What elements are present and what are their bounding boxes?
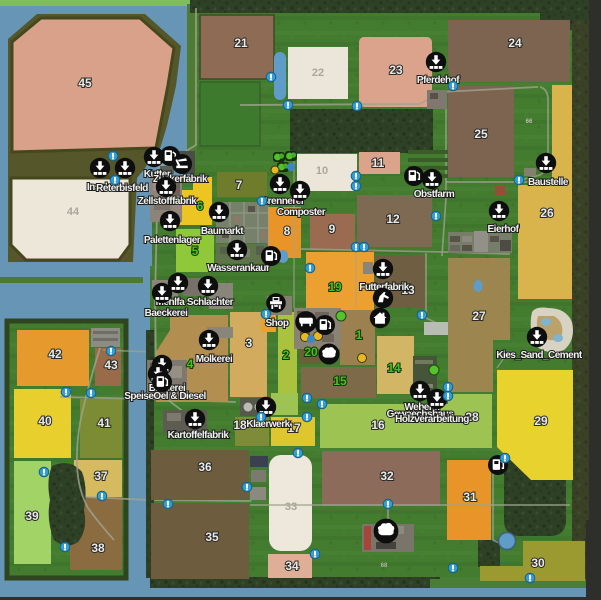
svg-text:23: 23: [389, 63, 403, 77]
svg-text:45: 45: [78, 76, 92, 90]
svg-text:7: 7: [236, 178, 243, 192]
svg-text:12: 12: [386, 212, 400, 226]
svg-text:SpeiseOel & Diesel: SpeiseOel & Diesel: [124, 391, 206, 402]
svg-text:21: 21: [234, 36, 248, 50]
svg-text:Reterbisfeld: Reterbisfeld: [96, 183, 148, 194]
svg-text:9: 9: [329, 222, 336, 236]
svg-text:Baumarkt: Baumarkt: [201, 226, 244, 237]
svg-text:43: 43: [104, 358, 118, 372]
svg-text:Shop: Shop: [266, 318, 289, 329]
svg-text:1: 1: [356, 328, 363, 342]
svg-text:30: 30: [531, 556, 545, 570]
svg-text:Wasserankauf: Wasserankauf: [207, 263, 270, 274]
svg-text:40: 40: [38, 414, 52, 428]
svg-text:16: 16: [371, 418, 385, 432]
svg-text:22: 22: [312, 67, 324, 79]
svg-text:18: 18: [233, 418, 247, 432]
svg-text:3: 3: [246, 336, 253, 350]
svg-text:Composter: Composter: [277, 207, 326, 218]
svg-text:38: 38: [91, 541, 105, 555]
svg-text:36: 36: [198, 460, 212, 474]
svg-text:26: 26: [540, 206, 554, 220]
svg-text:10: 10: [316, 165, 328, 177]
svg-text:29: 29: [534, 414, 548, 428]
svg-text:31: 31: [463, 490, 477, 504]
svg-text:14: 14: [387, 361, 401, 375]
svg-text:4: 4: [187, 357, 194, 371]
svg-text:Kies_Sand_Cement: Kies_Sand_Cement: [496, 350, 583, 361]
svg-text:5: 5: [192, 244, 199, 258]
svg-text:34: 34: [285, 559, 299, 573]
svg-text:68: 68: [381, 563, 388, 569]
svg-text:Molkerei: Molkerei: [196, 354, 233, 365]
svg-text:Palettenlager: Palettenlager: [144, 235, 201, 246]
svg-text:Schlachter: Schlachter: [187, 297, 234, 308]
svg-text:20: 20: [304, 345, 318, 359]
svg-text:8: 8: [284, 224, 291, 238]
svg-text:19: 19: [328, 280, 342, 294]
svg-text:Kartoffelfabrik: Kartoffelfabrik: [168, 430, 230, 441]
svg-text:Holzverarbeitung: Holzverarbeitung: [395, 414, 469, 425]
svg-text:37: 37: [94, 469, 108, 483]
svg-text:15: 15: [333, 374, 347, 388]
svg-text:27: 27: [472, 309, 486, 323]
svg-text:11: 11: [372, 156, 385, 170]
svg-text:Klaerwerk: Klaerwerk: [246, 419, 290, 430]
svg-text:2: 2: [283, 348, 290, 362]
svg-text:25: 25: [474, 127, 488, 141]
svg-text:35: 35: [205, 530, 219, 544]
svg-text:24: 24: [508, 36, 522, 50]
svg-text:42: 42: [48, 347, 62, 361]
svg-text:Baustelle: Baustelle: [528, 177, 569, 188]
svg-text:41: 41: [97, 416, 111, 430]
svg-text:Baeckerei: Baeckerei: [145, 308, 188, 319]
svg-text:33: 33: [285, 501, 297, 513]
svg-text:6: 6: [197, 199, 204, 213]
svg-text:66: 66: [526, 119, 533, 125]
svg-text:39: 39: [25, 509, 39, 523]
svg-text:32: 32: [380, 469, 394, 483]
svg-text:44: 44: [67, 206, 80, 218]
svg-text:Zellstofffabrik: Zellstofffabrik: [138, 196, 198, 207]
svg-text:Eierhof: Eierhof: [488, 224, 520, 235]
svg-text:Obstfarm: Obstfarm: [414, 189, 455, 200]
